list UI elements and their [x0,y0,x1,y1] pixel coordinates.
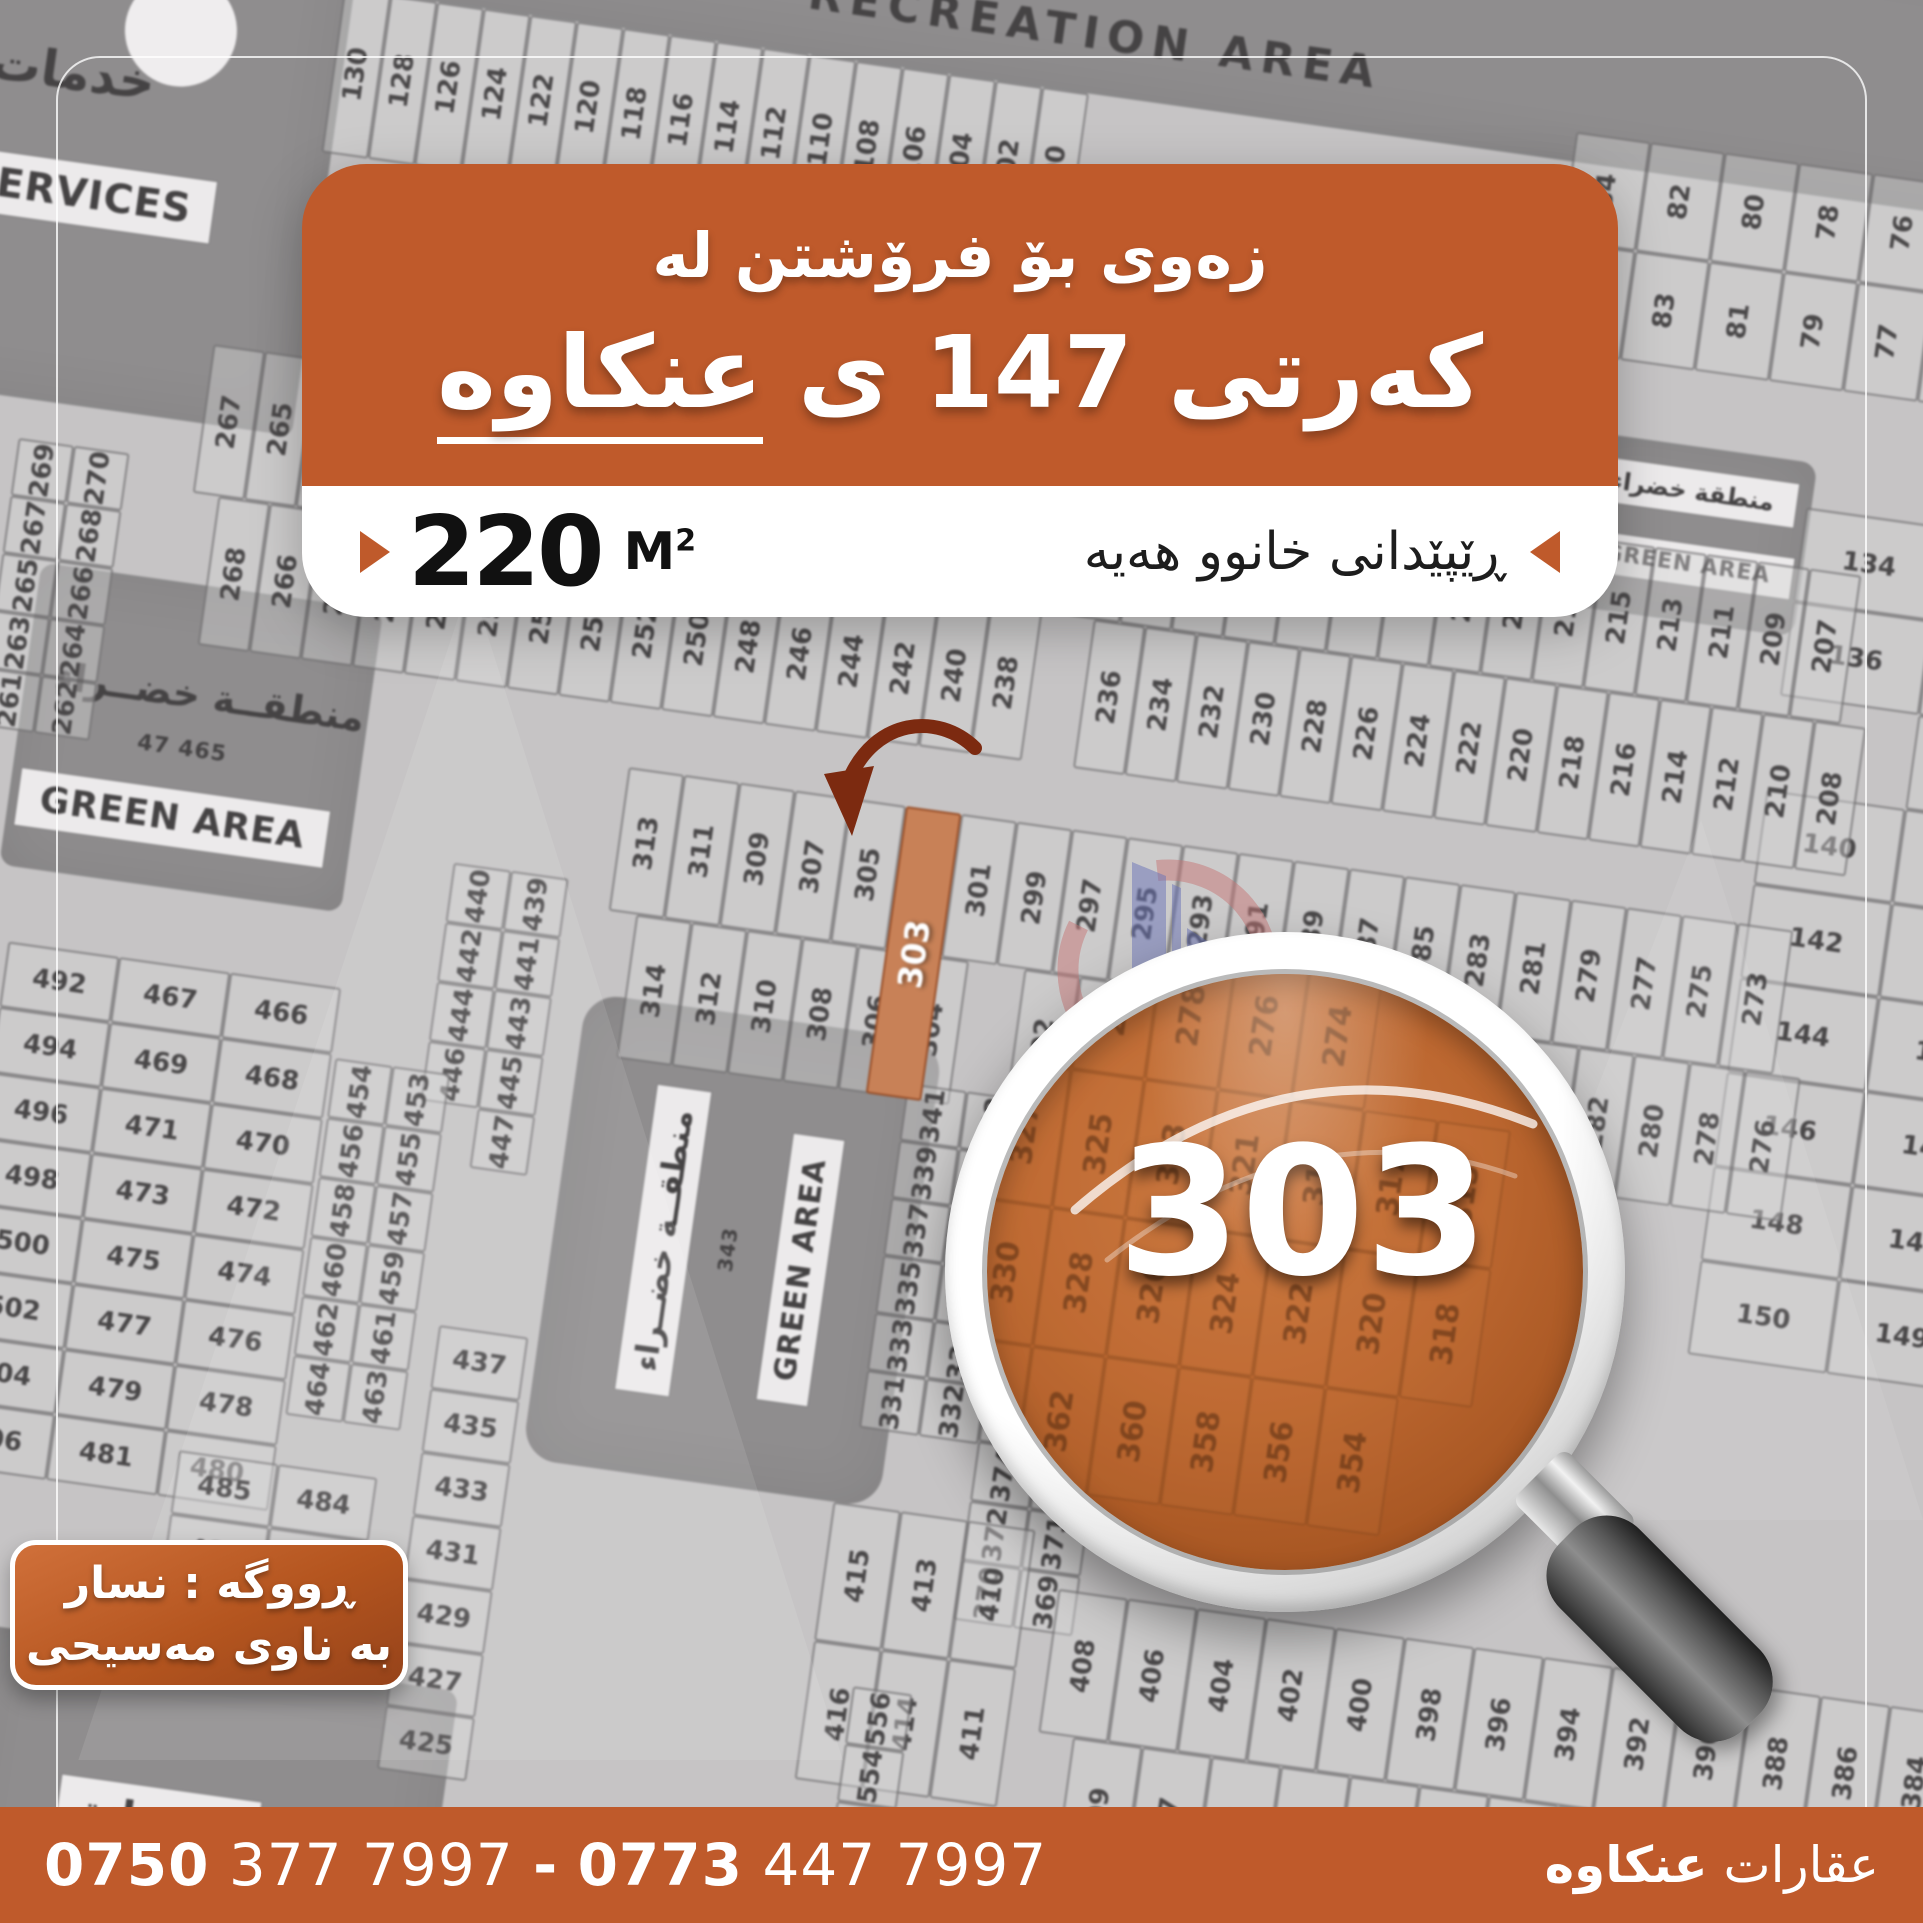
plot-number: 211 [1704,603,1741,661]
plot-cell: 268 [58,503,122,568]
plot-number: 321 [1223,1131,1266,1198]
map-area-label: SERVICES [0,145,217,244]
plot-number: 443 [500,994,537,1052]
plot-number: 411 [954,1704,991,1762]
plot-cell: 318 [1399,1259,1492,1408]
plot-number: 466 [252,994,310,1031]
plot-cell: 264 [42,618,106,683]
plot-number: 445 [492,1054,529,1112]
plot-number: 506 [0,1421,24,1458]
phone-separator: - [533,1831,558,1899]
direction-line2: بە ناوی مەسیحی [26,1615,392,1677]
plot-number: 250 [679,610,716,668]
plot-number: 335 [890,1259,927,1317]
plot-number: 228 [1297,697,1334,755]
plot-number: 433 [433,1471,491,1508]
map-area-label: منطقة خضراء [1586,455,1799,528]
plot-number: 472 [225,1191,283,1228]
plot-cell: 266 [50,561,114,626]
footer-bar: 0750 377 7997 - 0773 447 7997 عقارات عنک… [0,1807,1923,1923]
plot-number: 126 [431,58,468,116]
plot-cell: 326 [1106,1218,1199,1367]
plot-number: 318 [1424,1300,1467,1367]
plot-number: 392 [1619,1715,1656,1773]
plot-number: 408 [1065,1637,1102,1695]
plot-number: 78 [1811,203,1846,243]
plot-number: 388 [1758,1734,1795,1792]
map-area-label: GREEN AREA [757,1133,845,1406]
plot-cell: 554 [837,1744,904,1810]
plot-number: 504 [0,1355,33,1392]
plot-cell: 462 [294,1296,360,1363]
plot-number: 230 [1245,690,1282,748]
plot-number: 311 [683,822,720,880]
plot-number: 325 [1077,1110,1120,1177]
plot-cell: 325 [1052,1069,1145,1218]
plot-cell: 443 [486,990,552,1057]
plot-number: 81 [1722,301,1757,341]
plot-number: 262 [47,679,84,737]
phone2-rest: 447 7997 [762,1831,1047,1899]
phone2-prefix: 0773 [578,1831,743,1899]
magnified-plot-number: 303 [1117,1109,1489,1316]
plot-number: 218 [1554,733,1591,791]
plot-number: 278 [1689,1109,1726,1167]
plot-cell: 262 [34,675,98,740]
plot-number: 500 [0,1225,52,1262]
plot-number: 469 [132,1044,190,1081]
plot-number: 270 [79,449,116,507]
plot-cell: 333 [867,1313,934,1379]
plot-number: 328 [1057,1249,1100,1316]
plot-cell: 445 [478,1049,544,1116]
plot-number: 331 [874,1374,911,1432]
plot-number: 458 [325,1182,362,1240]
plot-cell: 447 [469,1108,535,1175]
plot-number: 83 [1648,291,1683,331]
plot-cell: 439 [503,871,569,938]
plot-number: 435 [442,1408,500,1445]
plot-number: 406 [1134,1646,1171,1704]
plot-cell: 456 [319,1117,385,1184]
plot-cell: 319 [1272,1100,1365,1249]
plot-cell: 453 [385,1066,451,1133]
plot-number: 441 [509,935,546,993]
plot-number: 143 [1913,1035,1923,1072]
plot-number: 234 [1142,676,1179,734]
plot-number: 207 [1807,617,1844,675]
plot-cell: 276 [1218,974,1311,1100]
plot-number: 267 [16,499,53,557]
plot-number: 268 [71,507,108,565]
plot-number: 112 [756,104,793,162]
plot-number: 118 [617,84,654,142]
plot-number: 473 [114,1175,172,1212]
plot-number: 273 [1737,970,1774,1028]
plot-number: 427 [406,1661,464,1698]
plot-cell: 442 [437,922,503,989]
triangle-left-icon [1530,531,1560,573]
plot-number: 444 [443,986,480,1044]
map-area-label: 343 [713,1226,743,1274]
plot-cell: 455 [376,1126,442,1193]
plot-number: 276 [1243,992,1286,1059]
plot-number: 308 [802,985,839,1043]
plot-number: 240 [936,647,973,705]
plot-cell: 460 [302,1236,368,1303]
plot-number: 80 [1737,192,1772,232]
plot-number: 213 [1652,596,1689,654]
plot-number: 263 [0,614,37,672]
plot-number: 485 [195,1470,253,1507]
phone1-prefix: 0750 [44,1831,209,1899]
plot-number: 413 [906,1556,943,1614]
plot-number: 145 [1899,1130,1923,1167]
plot-number: 314 [635,961,672,1019]
magnifier: 2822802782762743273253233213193173153303… [945,932,1625,1612]
plot-number: 386 [1827,1744,1864,1802]
plot-number: 274 [1316,1002,1359,1069]
plot-number: 496 [12,1094,70,1131]
plot-number: 209 [1755,610,1792,668]
direction-label: ڕووگە : نسار بە ناوی مەسیحی [10,1540,408,1690]
plot-number: 404 [1203,1656,1240,1714]
plot-cell: 322 [1252,1238,1345,1387]
plot-cell: 464 [285,1355,351,1422]
plot-number: 269 [24,442,61,500]
offer-banner: زەوی بۆ فرۆشتن لە کەرتی 147 ی عنکاوە 220… [302,164,1618,617]
plot-number: 431 [424,1535,482,1572]
plot-number: 461 [365,1309,402,1367]
lens-glare-icon [987,974,1583,1570]
plot-cell: 330 [987,1197,1052,1346]
plot-number: 124 [477,65,514,123]
plot-number: 248 [730,618,767,676]
plot-number: 301 [961,861,998,919]
plot-number: 232 [1194,683,1231,741]
plot-number: 312 [691,969,728,1027]
plot-cell: 358 [1160,1367,1253,1516]
plot-number: 339 [907,1144,944,1202]
plot-number: 222 [1451,719,1488,777]
plot-number: 457 [382,1190,419,1248]
plot-number: 468 [243,1060,301,1097]
plot-number: 442 [451,927,488,985]
plot-number: 266 [267,552,304,610]
plot-cell: 274 [1291,974,1384,1110]
plot-number: 313 [628,814,665,872]
plot-number: 212 [1708,755,1745,813]
plot-cell: 461 [351,1304,417,1371]
plot-number: 149 [1873,1318,1923,1355]
plot-number: 120 [570,78,607,136]
area-value: 220 [408,495,601,608]
area-unit: M2 [623,522,696,582]
plot-cell: 324 [1179,1228,1272,1377]
plot-cell: 459 [359,1244,425,1311]
permit-note: ڕێپێدانی خانوو هەیە [1084,522,1560,582]
plot-number: 437 [450,1344,508,1381]
plot-number: 402 [1273,1666,1310,1724]
map-area-label: 47 465 [136,730,229,767]
triangle-right-icon [360,531,390,573]
plot-number: 400 [1342,1676,1379,1734]
plot-number: 82 [1663,182,1698,222]
plot-number: 337 [898,1202,935,1260]
plot-number: 498 [3,1159,61,1196]
plot-number: 266 [63,564,100,622]
plot-number: 144 [1774,1016,1832,1053]
plot-cell: 356 [1233,1377,1326,1526]
plot-number: 464 [300,1360,337,1418]
plot-number: 453 [399,1071,436,1129]
plot-number: 481 [77,1436,135,1473]
plot-number: 477 [95,1306,153,1343]
plot-number: 76 [1886,213,1921,253]
area-size: 220 M2 [360,495,696,608]
banner-title: زەوی بۆ فرۆشتن لە [652,219,1267,292]
plot-number: 394 [1550,1705,1587,1763]
plot-number: 277 [1626,954,1663,1012]
plot-number: 454 [341,1063,378,1121]
plot-number: 471 [123,1110,181,1147]
plot-number: 216 [1606,741,1643,799]
sector-connector: ی [798,314,890,431]
plot-number: 110 [803,110,840,168]
banner-subtitle: کەرتی 147 ی عنکاوە [437,314,1483,431]
plot-number: 220 [1503,726,1540,784]
plot-number: 360 [1111,1398,1154,1465]
plot-number: 208 [1811,770,1848,828]
plot-number: 330 [987,1238,1027,1305]
plot-cell: 425 [377,1705,475,1781]
plot-number: 324 [1204,1269,1247,1336]
plot-number: 326 [1130,1259,1173,1326]
plot-number: 224 [1400,712,1437,770]
plot-number: 439 [517,875,554,933]
plot-cell: 481 [46,1415,166,1496]
plot-number: 554 [852,1748,889,1806]
plot-number: 429 [415,1598,473,1635]
plot-number: 77 [1870,322,1905,362]
plot-number: 396 [1480,1695,1517,1753]
plot-cell: 270 [66,446,130,511]
plot-number: 425 [397,1725,455,1762]
plot-number: 303 [890,917,938,991]
banner-info-bar: 220 M2 ڕێپێدانی خانوو هەیە [302,486,1618,617]
plot-number: 265 [262,400,299,458]
plot-cell: 150 [1687,1260,1839,1374]
plot-number: 447 [484,1113,521,1171]
plot-number: 114 [710,97,747,155]
plot-number: 150 [1734,1298,1792,1335]
phone1-rest: 377 7997 [229,1831,514,1899]
plot-number: 320 [1350,1290,1393,1357]
unit-exponent: 2 [675,523,696,558]
magnified-map: 2822802782762743273253233213193173153303… [987,974,1583,1570]
plot-number: 275 [1681,962,1718,1020]
plot-number: 455 [390,1130,427,1188]
plot-number: 354 [1331,1428,1374,1495]
plot-number: 362 [1038,1387,1081,1454]
plot-number: 122 [524,71,561,129]
brand-city: عنکاوە [1545,1836,1708,1894]
plot-number: 214 [1657,748,1694,806]
plot-cell: 149 [1826,1280,1923,1394]
plot-number: 236 [1091,668,1128,726]
brand-word: عقارات [1724,1836,1879,1894]
plot-cell: 269 [11,438,75,503]
magnifier-lens: 2822802782762743273253233213193173153303… [987,974,1583,1570]
plot-number: 333 [882,1317,919,1375]
plot-number: 210 [1760,762,1797,820]
plot-number: 226 [1348,704,1385,762]
plot-cell: 267 [3,495,67,560]
plot-number: 130 [337,45,374,103]
plot-cell: 328 [1032,1208,1125,1357]
plot-number: 398 [1411,1685,1448,1743]
plot-number: 267 [210,393,247,451]
plot-number: 478 [197,1387,255,1424]
plot-number: 358 [1184,1408,1227,1475]
plot-number: 415 [839,1547,876,1605]
plot-number: 128 [384,51,421,109]
plot-number: 459 [374,1249,411,1307]
plot-number: 384 [1896,1753,1923,1811]
plot-cell: 463 [343,1363,409,1430]
plot-number: 280 [1634,1102,1671,1160]
plot-number: 322 [1277,1279,1320,1346]
plot-number: 147 [1886,1224,1923,1261]
plot-cell: 331 [859,1370,926,1436]
plot-number: 268 [215,545,252,603]
direction-line1: ڕووگە : نسار [65,1553,353,1615]
plot-cell: 454 [327,1058,393,1125]
plot-number: 319 [1296,1141,1339,1208]
plot-cell: 354 [1306,1387,1399,1536]
banner-orange-panel: زەوی بۆ فرۆشتن لە کەرتی 147 ی عنکاوە [302,164,1618,486]
plot-number: 463 [357,1368,394,1426]
plot-number: 265 [8,556,45,614]
plot-number: 476 [206,1321,264,1358]
phone-numbers: 0750 377 7997 - 0773 447 7997 [44,1831,1047,1899]
plot-cell: 458 [310,1177,376,1244]
plot-number: 116 [663,91,700,149]
sector-number: 147 [924,314,1133,431]
permit-note-text: ڕێپێدانی خانوو هەیە [1084,522,1506,582]
plot-cell: 317 [1345,1110,1438,1259]
sector-word: کەرتی [1168,314,1483,431]
plot-number: 317 [1370,1151,1413,1218]
plot-number: 484 [294,1484,352,1521]
plot-number: 246 [782,625,819,683]
map-area-label: منطقــة خضــراء [615,1085,711,1397]
plot-number: 142 [1787,922,1845,959]
plot-number: 238 [988,654,1025,712]
plot-number: 467 [141,979,199,1016]
plot-number: 356 [1258,1418,1301,1485]
plot-number: 276 [1744,1117,1781,1175]
plot-cell: 321 [1198,1090,1291,1239]
plot-cell: 315 [1418,1120,1511,1269]
plot-number: 264 [55,622,92,680]
plot-cell: 441 [495,930,561,997]
plot-number: 474 [215,1256,273,1293]
plot-cell: 323 [1125,1079,1218,1228]
plot-number: 470 [234,1125,292,1162]
plot-number: 492 [30,963,88,1000]
plot-number: 479 [86,1371,144,1408]
unit-letter: M [623,522,675,582]
plot-number: 460 [316,1241,353,1299]
city-name: عنکاوە [437,314,763,444]
plot-number: 323 [1150,1120,1193,1187]
plot-cell: 440 [445,863,511,930]
plot-number: 440 [460,867,497,925]
plot-cell: 77 [1843,282,1923,401]
plot-number: 556 [860,1690,897,1748]
plot-number: 79 [1796,312,1831,352]
plot-number: 502 [0,1290,42,1327]
plot-number: 462 [308,1301,345,1359]
brand-name: عقارات عنکاوە [1545,1836,1879,1894]
plot-cell: 265 [0,553,58,618]
plot-number: 261 [0,671,29,729]
plot-number: 315 [1443,1161,1486,1228]
plot-cell: 320 [1326,1249,1419,1398]
plot-number: 310 [746,977,783,1035]
plot-cell: 457 [368,1185,434,1252]
plot-cell: 335 [875,1255,942,1321]
plot-number: 475 [105,1240,163,1277]
plot-number: 494 [21,1029,79,1066]
plot-cell: 556 [845,1686,912,1752]
plot-cell: 337 [883,1198,950,1264]
flyer: RECREATION AREAخدماتSERVICESمنطقة خضراءG… [0,0,1923,1923]
plot-number: 244 [833,632,870,690]
map-area-label: GREEN AREA [14,768,330,868]
plot-cell: 444 [429,981,495,1048]
plot-number: 456 [333,1122,370,1180]
plot-pointer-arrow-icon [770,708,1000,858]
plot-number: 242 [885,639,922,697]
plot-cell: 360 [1086,1357,1179,1506]
